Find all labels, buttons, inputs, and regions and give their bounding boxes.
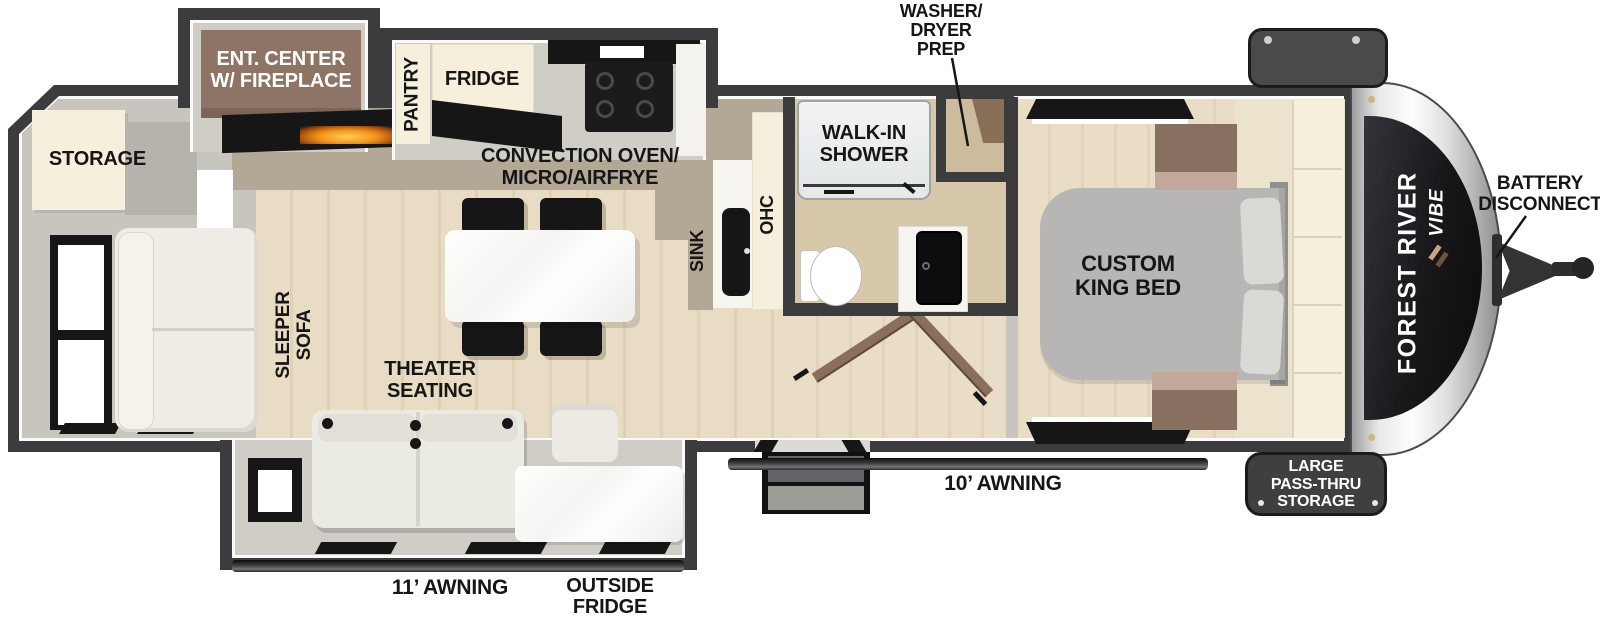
dinette-chair-3 [462,320,524,356]
front-wardrobe-shelf-line-3 [1292,304,1342,306]
propane-cover-cap-left [1264,36,1272,44]
convection-label-line2: MICRO/AIRFRYE [455,167,705,189]
badge-rivet-left [1258,500,1264,506]
bed-pillow-top [1240,197,1284,285]
nightstand-bottom [1152,372,1237,430]
shower-door-handle [824,190,854,194]
sleeper-sofa-back-cushion [118,232,154,430]
bed-pillow-bottom [1240,289,1284,375]
sink-label: SINK [688,221,708,281]
awning-front-label: 10’ AWNING [898,472,1108,495]
ohc-label: OHC [758,187,778,243]
walk-in-shower-label-line2: SHOWER [795,144,933,166]
front-wardrobe [1292,100,1344,438]
dinette-chair-4 [540,320,602,356]
theater-cupholder-1 [322,418,333,429]
theater-cupholder-4 [502,418,513,429]
outside-fridge-label-line2: FRIDGE [540,597,680,618]
hitch-a-frame [1498,242,1556,300]
outside-fridge-label: OUTSIDE FRIDGE [540,576,680,618]
stove-burner-1 [596,72,614,90]
range-hood-vent [600,46,644,58]
storage-label: STORAGE [40,148,155,170]
pantry-label: PANTRY [403,49,424,139]
bathroom-wall-left [783,97,795,316]
badge-rivet-right [1372,500,1378,506]
custom-king-bed-label: CUSTOM KING BED [1038,252,1218,300]
sleeper-sofa-seat-divider [152,328,254,331]
cap-screw-top [1368,96,1375,103]
bedroom-window-top [1026,99,1194,119]
kitchen-island [445,230,635,322]
washer-dryer-prep-label-line1: WASHER/ [880,2,1002,21]
slide-bottom-window-slit-3 [599,542,671,554]
sink-faucet [744,248,750,254]
washer-dryer-prep-label-line3: PREP [880,40,1002,59]
sleeper-sofa-label-line2: SOFA [295,280,316,390]
slide-end-window-pane [258,470,292,512]
battery-disconnect-label-line2: DISCONNECT [1478,195,1600,216]
nightstand-top [1155,124,1237,190]
custom-king-bed-label-line1: CUSTOM [1038,252,1218,276]
awning-rear-label: 11’ AWNING [350,576,550,599]
walk-in-shower-label: WALK-IN SHOWER [795,122,933,166]
theater-seat-left-back [318,414,416,442]
rear-window-pane-top [58,245,104,330]
theater-slide-wall-left [220,440,232,570]
dinette-chair-1 [462,198,524,234]
theater-cupholder-3 [410,438,421,449]
kitchen-side-counter [676,44,706,156]
fireplace-flame [300,126,395,144]
convection-label-line1: CONVECTION OVEN/ [455,145,705,167]
awning-rail-front [728,458,1208,470]
rear-window-pane-bottom [58,340,104,425]
theater-slide-wall-right [685,440,697,570]
brand-vibe: VIBE [1428,172,1449,252]
pass-thru-storage-label-line1: LARGE [1245,458,1387,476]
propane-cover-cap-right [1352,36,1360,44]
theater-seating-label-line2: SEATING [355,380,505,402]
convection-label: CONVECTION OVEN/ MICRO/AIRFRYE [455,145,705,189]
pass-thru-storage-label-line2: PASS-THRU [1245,476,1387,494]
rear-bottom-window-slit-1 [59,423,121,434]
washer-dryer-prep-label-line2: DRYER [880,21,1002,40]
slide-bottom-window-slit-2 [465,542,547,554]
pass-thru-storage-label: LARGE PASS-THRU STORAGE [1245,458,1387,511]
theater-seating-label: THEATER SEATING [355,358,505,402]
stove-cooktop [585,62,673,132]
walk-in-shower-label-line1: WALK-IN [795,122,933,144]
dinette-chair-2 [540,198,602,234]
toilet-bowl [810,246,862,306]
floorplan-canvas: STORAGE SLEEPER SOFA ENT. CENTER W/ FIRE… [0,0,1600,619]
theater-seating-label-line1: THEATER [355,358,505,380]
sleeper-sofa-label-line1: SLEEPER [274,280,295,390]
front-wardrobe-shelf-line-4 [1292,372,1342,374]
ent-center-label-line1: ENT. CENTER [201,48,361,70]
ent-center-label-line2: W/ FIREPLACE [201,70,361,92]
brand-forest-river: FOREST RIVER [1394,153,1422,393]
vanity-sink-dot [922,262,930,270]
outside-kitchen-counter [515,466,683,542]
stove-burner-2 [636,72,654,90]
cap-screw-bottom [1368,434,1375,441]
sleeper-sofa-label: SLEEPER SOFA [274,280,316,390]
entry-step-lower [768,486,864,510]
washer-dryer-prep-label: WASHER/ DRYER PREP [880,2,1002,59]
front-wardrobe-shelf-line-1 [1292,168,1342,170]
outside-fridge-label-line1: OUTSIDE [540,576,680,597]
stove-burner-4 [636,100,654,118]
hitch-coupler-ball [1572,257,1594,279]
theater-cupholder-2 [410,420,421,431]
rear-storage-gap [197,170,233,230]
battery-disconnect-label-line1: BATTERY [1478,174,1600,195]
slide-bottom-window-slit-1 [315,542,397,554]
ent-center-label: ENT. CENTER W/ FIREPLACE [201,48,361,92]
battery-disconnect-label: BATTERY DISCONNECT [1478,174,1600,216]
front-wardrobe-shelf-line-2 [1292,236,1342,238]
pass-thru-storage-label-line3: STORAGE [1245,493,1387,511]
fridge-label: FRIDGE [432,68,532,90]
custom-king-bed-label-line2: KING BED [1038,276,1218,300]
awning-rail-rear [232,560,684,572]
outside-kitchen-stool [552,404,618,462]
stove-burner-3 [596,100,614,118]
